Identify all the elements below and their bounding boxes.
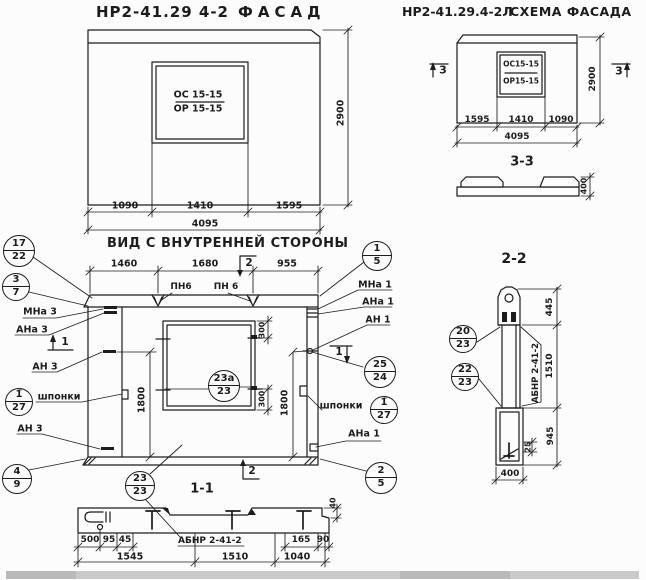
callout-top: 3 (3, 274, 29, 287)
callout-1-5: 1 5 (362, 241, 392, 271)
label-pn6-right: ПН 6 (214, 282, 238, 292)
label-ana3: АНа 3 (16, 325, 48, 336)
callout-bottom: 5 (366, 478, 396, 493)
callout-top: 22 (452, 364, 478, 377)
callout-25-24: 25 24 (364, 356, 396, 388)
callout-23-23: 23 23 (125, 471, 155, 501)
dim-s22-25: 25 (524, 441, 533, 452)
dim-s11-1545: 1545 (117, 552, 143, 563)
dim-inner-1800-right: 1800 (280, 390, 291, 416)
callout-top: 1 (363, 242, 391, 256)
dim-s11-500: 500 (81, 535, 100, 545)
callout-bottom: 27 (6, 402, 32, 415)
callout-bottom: 23 (209, 386, 239, 401)
schema-window-mark-bottom: ОР15-15 (503, 77, 539, 86)
callout-23a-23: 23а 23 (208, 370, 240, 402)
callout-top: 4 (3, 465, 31, 479)
callout-bottom: 23 (450, 339, 476, 352)
drawing-linework (0, 0, 646, 580)
facade-title-word: ФАСАД (238, 3, 325, 21)
dim-s22-445: 445 (545, 298, 555, 317)
dim-s11-40: 40 (329, 497, 338, 508)
label-ana1-lower: АНа 1 (348, 429, 380, 440)
callout-top: 23а (209, 371, 239, 386)
section-1-1-body (78, 508, 329, 533)
callout-top: 25 (365, 357, 395, 372)
callout-top: 17 (4, 236, 34, 251)
callout-4-9: 4 9 (2, 464, 32, 494)
label-pn6-left: ПН6 (170, 282, 191, 292)
label-shponki-right: шпонки (320, 401, 363, 412)
schema-window-mark-top: ОС15-15 (503, 60, 539, 69)
label-ana1-upper: АНа 1 (362, 297, 394, 308)
callout-bottom: 9 (3, 479, 31, 493)
callout-bottom: 5 (363, 256, 391, 270)
dim-inner-1460: 1460 (111, 259, 137, 270)
dim-schema-4095: 4095 (504, 132, 529, 142)
dim-s11-45: 45 (119, 535, 132, 545)
section-2-2-body (496, 287, 523, 465)
profile-3-3 (457, 177, 579, 196)
callout-bottom: 22 (4, 251, 34, 266)
callout-22-23: 22 23 (451, 363, 479, 391)
label-shponki-left: шпонки (38, 392, 81, 403)
dim-facade-4095: 4095 (192, 219, 218, 230)
section-2-2-title: 2-2 (501, 251, 526, 267)
callout-3-7: 3 7 (2, 273, 30, 301)
dim-inner-300-top: 300 (258, 322, 267, 339)
scan-strip (6, 571, 639, 579)
callout-top: 1̄ (371, 397, 397, 410)
flag-1-left: 1 (61, 336, 68, 348)
dim-schema-1595: 1595 (464, 115, 489, 125)
section-3-3-title: 3-3 (510, 155, 534, 170)
dim-schema-2900: 2900 (588, 66, 598, 91)
callout-1-27-left: 1̈ 27 (5, 388, 33, 416)
callout-top: 2 (366, 463, 396, 478)
callout-bottom: 23 (452, 377, 478, 390)
dim-inner-1680: 1680 (192, 259, 218, 270)
dim-inner-300-bottom: 300 (258, 391, 267, 408)
callout-top: 23 (126, 472, 154, 486)
dim-facade-2900: 2900 (336, 100, 347, 126)
dim-s22-1510: 1510 (545, 353, 555, 378)
section-1-1-title: 1-1 (190, 482, 214, 497)
section-3-marker-left: 3 (439, 64, 447, 77)
dim-profile-400: 400 (580, 178, 589, 195)
facade-panel-outline (88, 30, 320, 205)
label-rebar-s11: АБНР 2-41-2 (178, 536, 242, 546)
callout-1-27-right: 1̄ 27 (370, 396, 398, 424)
schema-dimension-lines (453, 33, 604, 147)
label-an3-lower: АН 3 (17, 424, 42, 435)
dim-facade-1595: 1595 (276, 201, 302, 212)
facade-window-mark-top: ОС 15-15 (174, 90, 223, 101)
label-mna3: МНа 3 (23, 307, 57, 318)
label-rebar-s22: АБНР 2-41-2 (531, 343, 541, 403)
section-3-marker-right: 3 (615, 65, 623, 78)
dim-s11-95: 95 (103, 535, 116, 545)
facade-window-mark-bottom: ОР 15-15 (174, 104, 223, 115)
callout-2-5: 2 5 (365, 462, 397, 494)
dim-s22-945: 945 (546, 427, 556, 446)
dim-s22-400: 400 (501, 469, 520, 479)
callout-bottom: 7 (3, 287, 29, 300)
flag-2-top: 2 (245, 257, 252, 269)
facade-title-code: НР2-41.29 4-2 (96, 3, 229, 21)
dim-schema-1090: 1090 (548, 115, 573, 125)
callout-top: 1̈ (6, 389, 32, 402)
callout-bottom: 27 (371, 410, 397, 423)
flag-1-right: 1 (335, 346, 342, 358)
dim-inner-955: 955 (277, 259, 297, 270)
dim-facade-1410: 1410 (187, 201, 213, 212)
callout-top: 20 (450, 326, 476, 339)
callout-bottom: 24 (365, 372, 395, 387)
label-an1: АН 1 (365, 315, 390, 326)
dim-inner-1800-left: 1800 (137, 387, 148, 413)
dim-s11-90: 90 (317, 535, 330, 545)
dim-s11-165: 165 (292, 535, 311, 545)
blueprint-sheet: НР2-41.29 4-2 ФАСАД НР2-41.29.4-2Л СХЕМА… (0, 0, 646, 580)
callout-20-23: 20 23 (449, 325, 477, 353)
flag-2-bottom: 2 (248, 465, 255, 477)
schema-title-word: СХЕМА ФАСАДА (510, 4, 632, 19)
label-an3-upper: АН 3 (32, 362, 57, 373)
inner-view-title: ВИД С ВНУТРЕННЕЙ СТОРОНЫ (107, 236, 348, 251)
label-mna1: МНа 1 (358, 280, 392, 291)
dim-s11-1510: 1510 (222, 552, 248, 563)
dim-facade-1090: 1090 (112, 201, 138, 212)
callout-17-22: 17 22 (3, 235, 35, 267)
callout-bottom: 23 (126, 486, 154, 500)
dim-s11-1040: 1040 (284, 552, 310, 563)
schema-title-code: НР2-41.29.4-2Л (402, 4, 513, 19)
dim-schema-1410: 1410 (508, 115, 533, 125)
